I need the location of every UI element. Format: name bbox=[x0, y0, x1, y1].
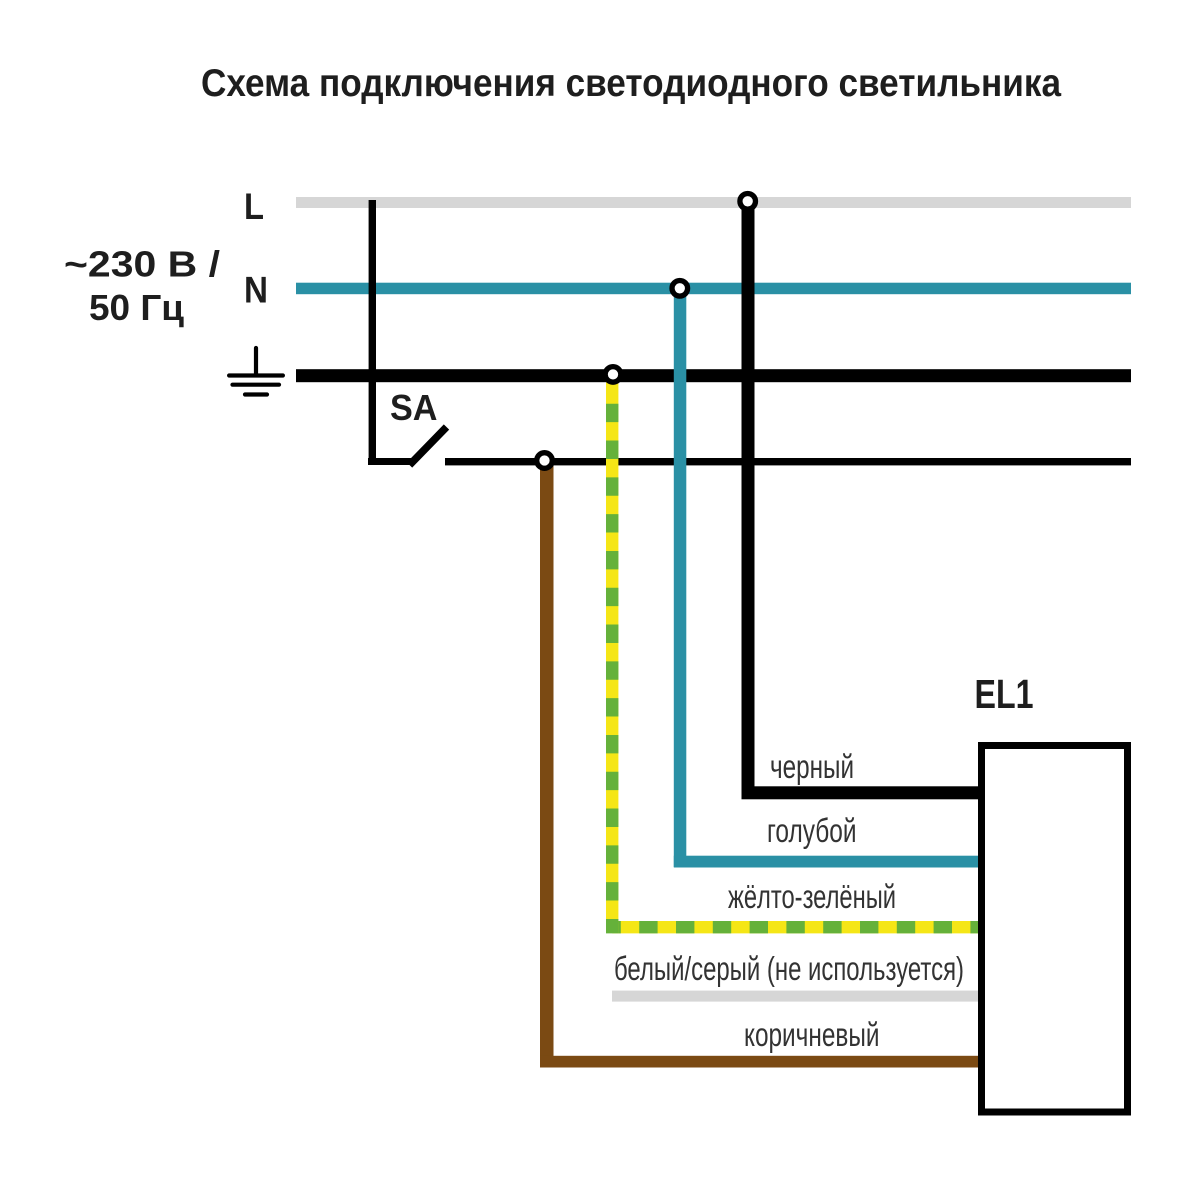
svg-text:голубой: голубой bbox=[767, 812, 857, 849]
svg-text:черный: черный bbox=[770, 748, 854, 785]
svg-text:SA: SA bbox=[390, 387, 438, 428]
svg-text:белый/серый (не используется): белый/серый (не используется) bbox=[614, 950, 964, 987]
svg-text:Схема подключения светодиодног: Схема подключения светодиодного светильн… bbox=[201, 62, 1062, 105]
svg-text:50 Гц: 50 Гц bbox=[89, 287, 185, 328]
svg-text:~230 В /: ~230 В / bbox=[64, 244, 220, 285]
svg-text:L: L bbox=[244, 185, 264, 227]
svg-text:EL1: EL1 bbox=[975, 671, 1034, 717]
svg-text:жёлто-зелёный: жёлто-зелёный bbox=[728, 878, 896, 915]
svg-text:коричневый: коричневый bbox=[744, 1016, 880, 1053]
svg-text:N: N bbox=[244, 269, 268, 311]
